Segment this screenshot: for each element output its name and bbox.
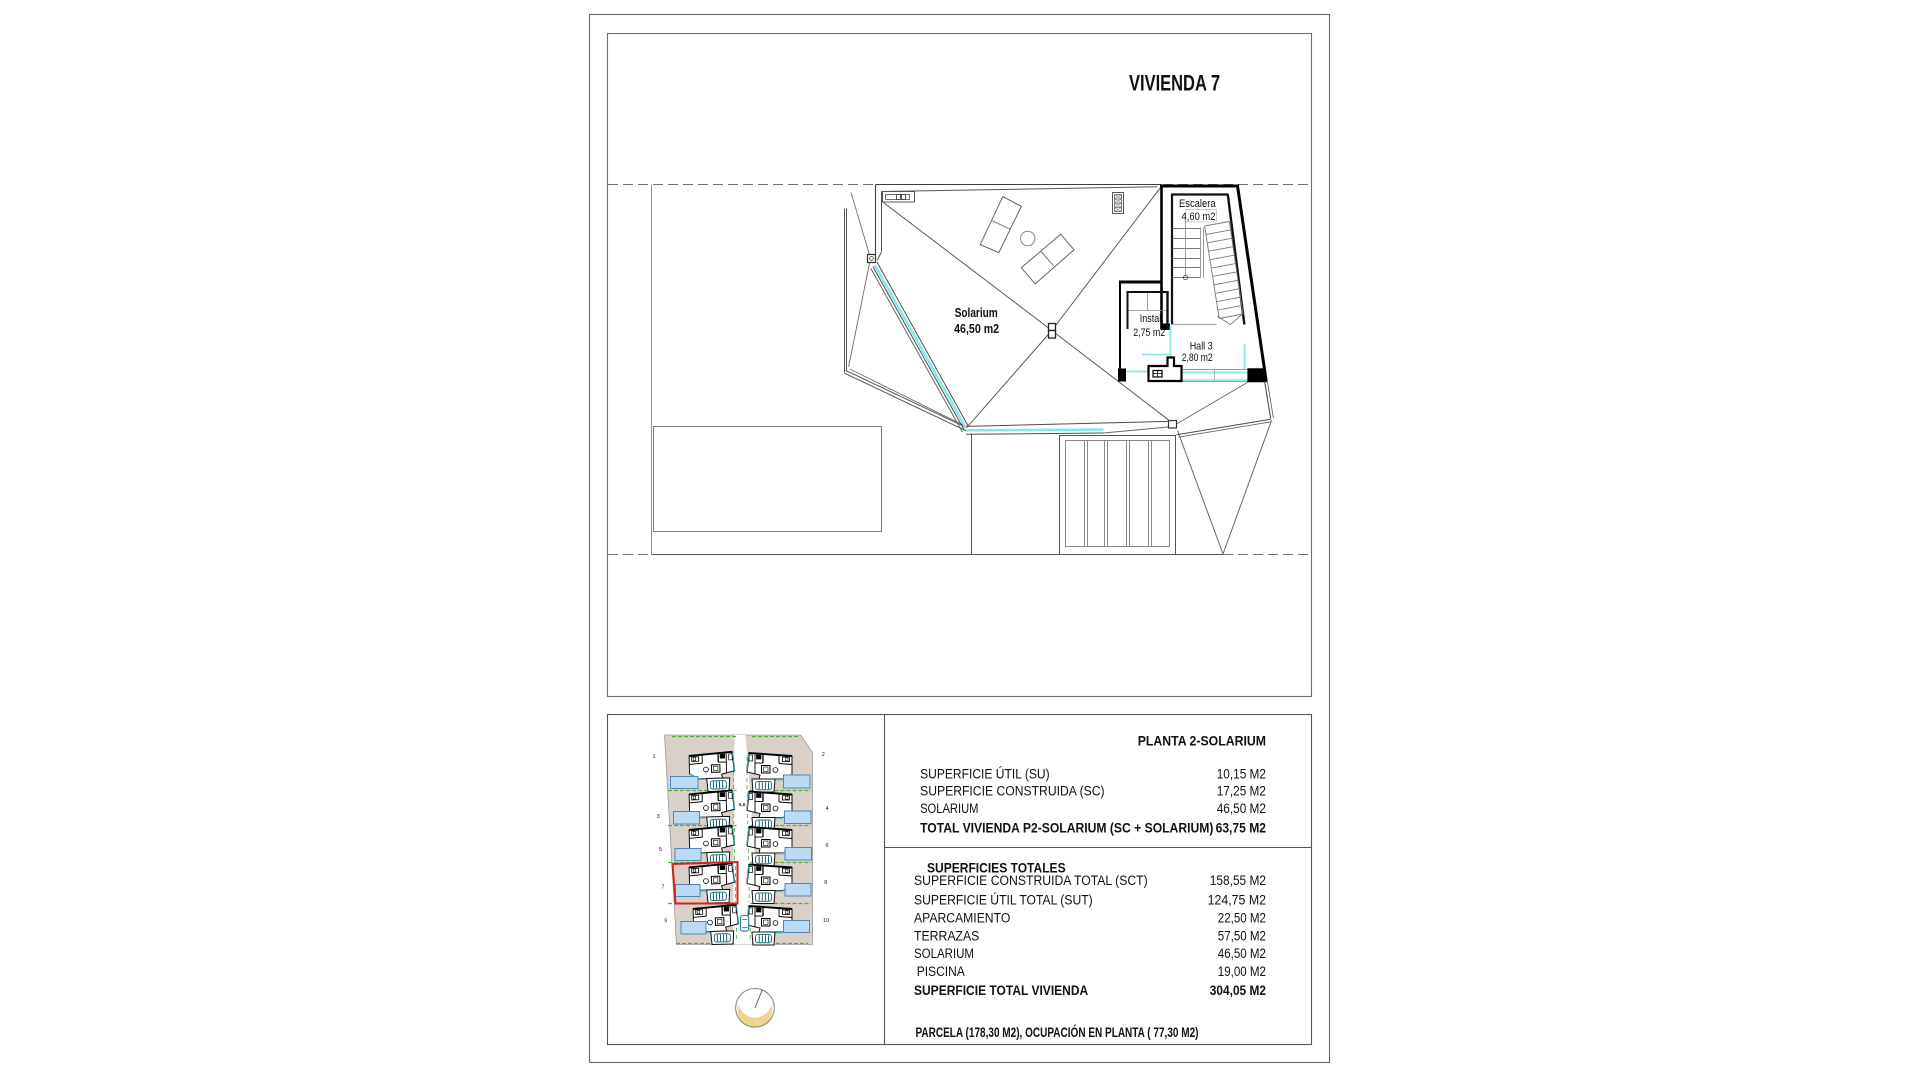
- svg-text:17,25 M2: 17,25 M2: [1217, 784, 1266, 799]
- svg-text:2,75 m2: 2,75 m2: [1133, 327, 1165, 339]
- svg-text:46,50 M2: 46,50 M2: [1217, 801, 1266, 816]
- svg-text:4,60 m2: 4,60 m2: [1182, 211, 1216, 223]
- svg-text:2,80 m2: 2,80 m2: [1182, 352, 1213, 364]
- svg-text:Hall 3: Hall 3: [1190, 340, 1213, 352]
- svg-text:8: 8: [824, 880, 827, 886]
- svg-text:6,6: 6,6: [739, 802, 746, 807]
- svg-text:SUPERFICIE CONSTRUIDA (SC): SUPERFICIE CONSTRUIDA (SC): [920, 784, 1105, 799]
- svg-text:19,00 M2: 19,00 M2: [1218, 964, 1266, 979]
- svg-text:46,50 M2: 46,50 M2: [1218, 946, 1266, 961]
- svg-text:PARCELA (178,30 M2), OCUPACIÓ: PARCELA (178,30 M2), OCUPACIÓN EN PLANTA…: [916, 1025, 1199, 1040]
- svg-text:TOTAL VIVIENDA P2-SOLARIUM (SC: TOTAL VIVIENDA P2-SOLARIUM (SC + SOLARIU…: [920, 820, 1213, 835]
- svg-text:9: 9: [664, 919, 667, 925]
- svg-text:10,15 M2: 10,15 M2: [1217, 766, 1266, 781]
- svg-text:SOLARIUM: SOLARIUM: [920, 801, 978, 816]
- svg-text:304,05 M2: 304,05 M2: [1210, 983, 1266, 998]
- svg-text:SUPERFICIE CONSTRUIDA TOTAL (S: SUPERFICIE CONSTRUIDA TOTAL (SCT): [914, 873, 1148, 888]
- svg-text:3: 3: [657, 814, 660, 820]
- svg-text:63,75 M2: 63,75 M2: [1216, 820, 1266, 835]
- svg-text:Solarium: Solarium: [955, 306, 998, 320]
- svg-text:10: 10: [823, 918, 829, 924]
- svg-text:SUPERFICIE ÚTIL TOTAL (SUT): SUPERFICIE ÚTIL TOTAL (SUT): [914, 892, 1093, 907]
- svg-text:5: 5: [659, 847, 662, 853]
- svg-text:SOLARIUM: SOLARIUM: [914, 946, 974, 961]
- svg-text:PLANTA 2-SOLARIUM: PLANTA 2-SOLARIUM: [1138, 732, 1266, 748]
- svg-text:2: 2: [822, 752, 825, 758]
- svg-text:158,55 M2: 158,55 M2: [1210, 873, 1266, 888]
- svg-text:4: 4: [826, 806, 829, 812]
- svg-text:SUPERFICIE TOTAL VIVIENDA: SUPERFICIE TOTAL VIVIENDA: [914, 983, 1088, 998]
- svg-text:1: 1: [653, 754, 656, 760]
- svg-text:22,50 M2: 22,50 M2: [1218, 911, 1266, 926]
- svg-text:46,50 m2: 46,50 m2: [954, 322, 999, 336]
- svg-text:PISCINA: PISCINA: [917, 964, 965, 979]
- svg-text:6: 6: [826, 843, 829, 849]
- svg-text:57,50 M2: 57,50 M2: [1218, 929, 1266, 944]
- svg-text:APARCAMIENTO: APARCAMIENTO: [914, 911, 1010, 926]
- svg-text:124,75 M2: 124,75 M2: [1208, 892, 1266, 907]
- svg-text:7: 7: [661, 885, 664, 891]
- svg-text:VIVIENDA 7: VIVIENDA 7: [1129, 71, 1220, 96]
- svg-text:Escalera: Escalera: [1179, 198, 1216, 210]
- svg-text:TERRAZAS: TERRAZAS: [914, 929, 979, 944]
- svg-text:Instal.: Instal.: [1140, 313, 1164, 325]
- svg-text:SUPERFICIE ÚTIL (SU): SUPERFICIE ÚTIL (SU): [920, 766, 1050, 781]
